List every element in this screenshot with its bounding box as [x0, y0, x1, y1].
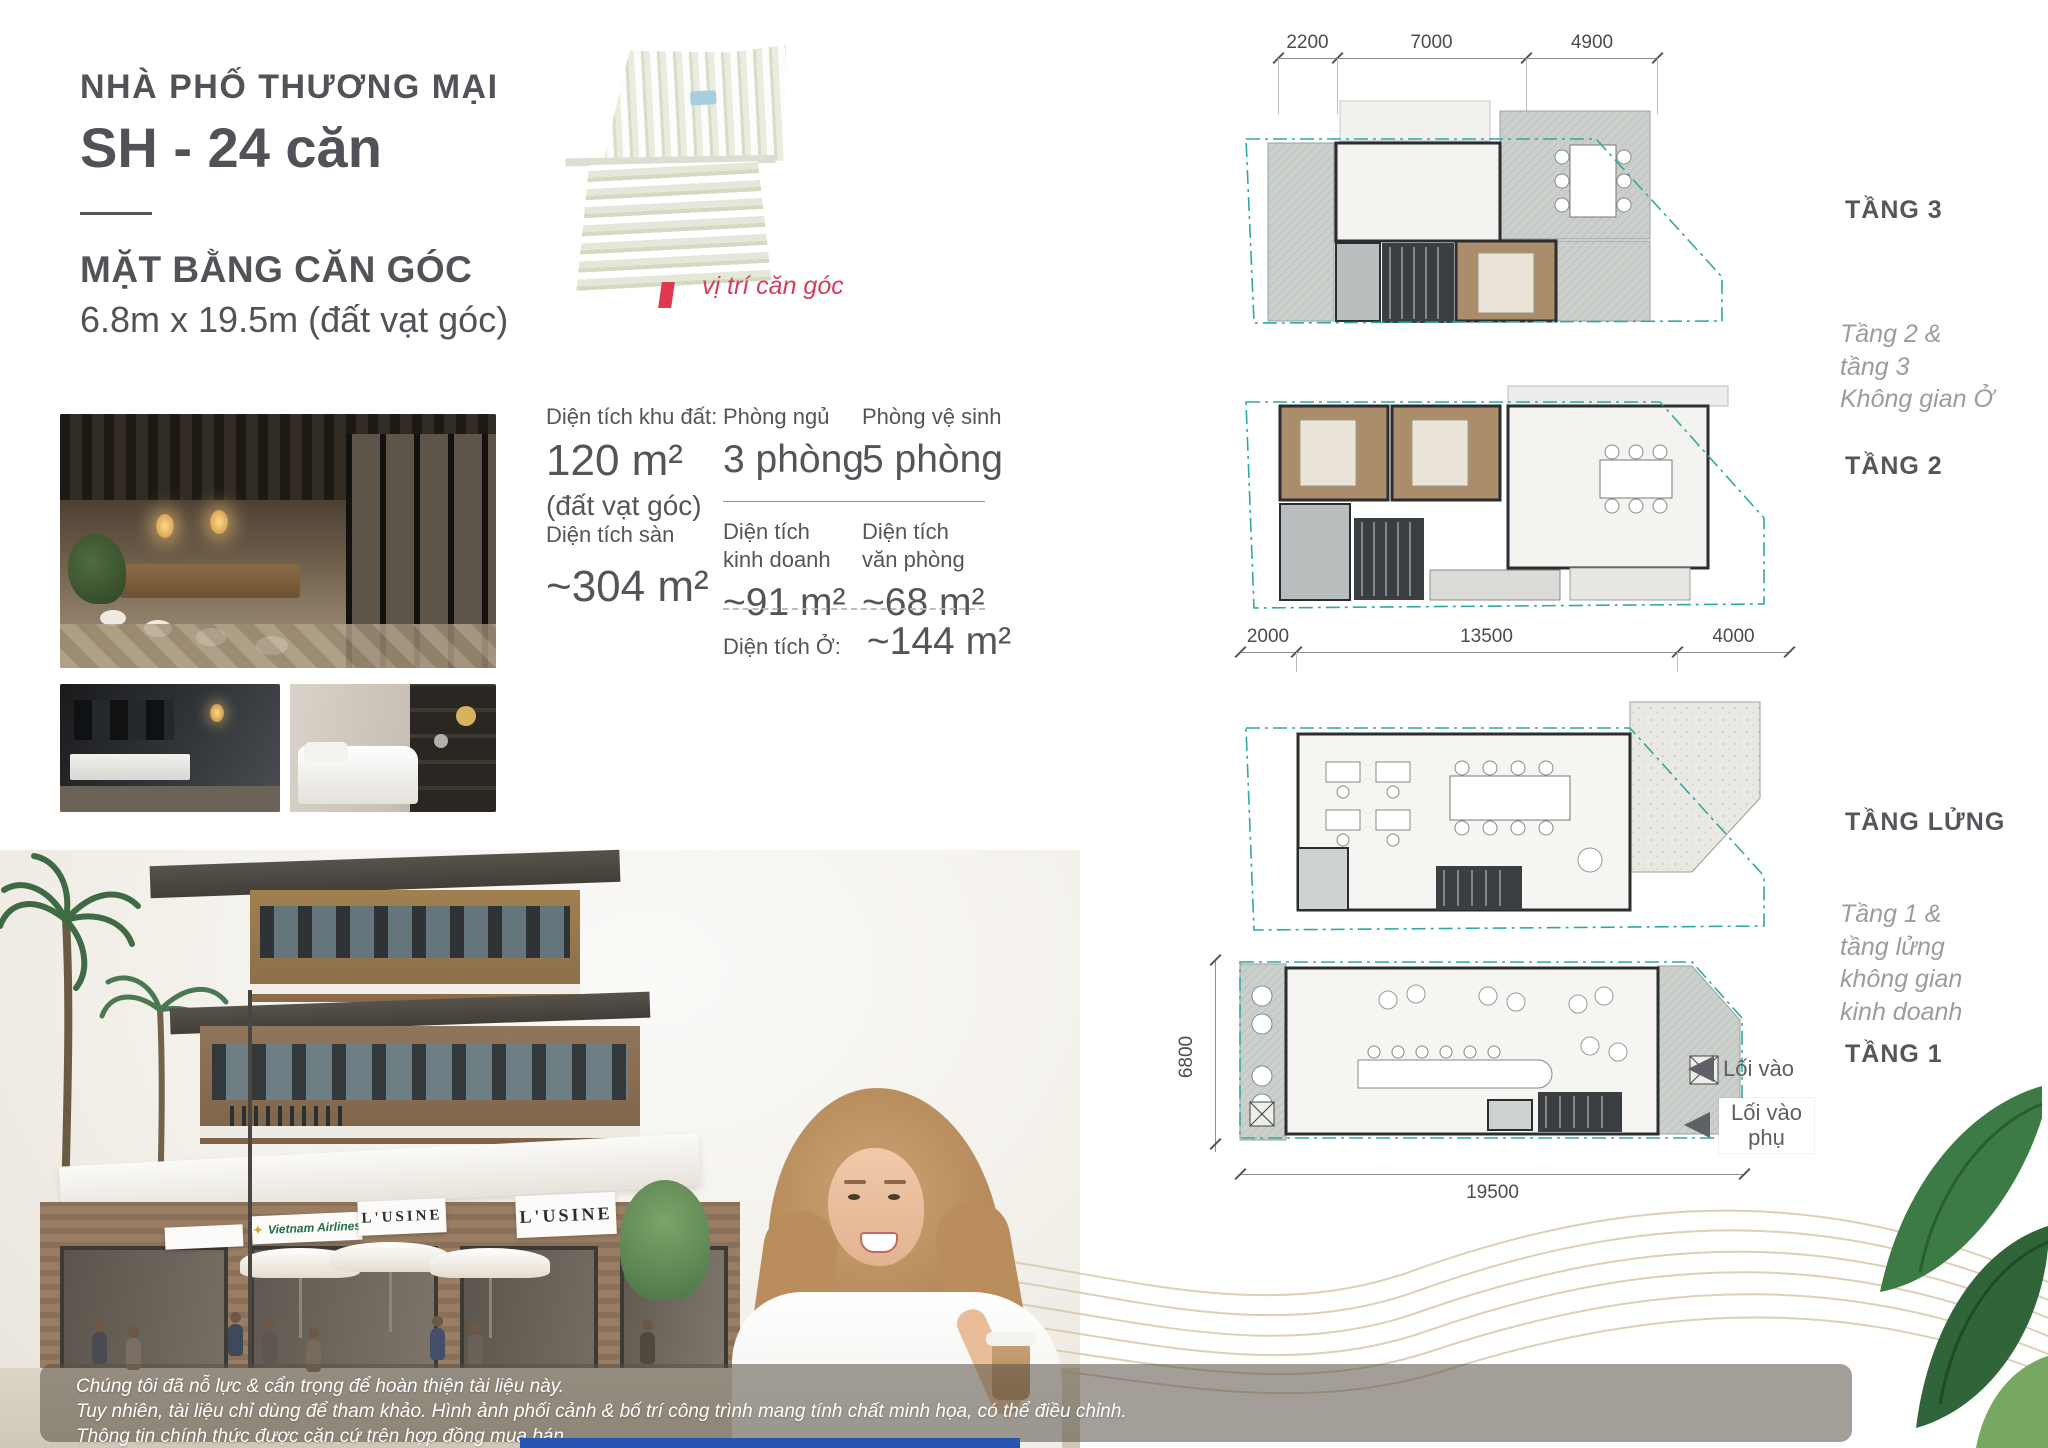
dim-7000: 7000: [1337, 32, 1526, 54]
storefront-sign-blank: [165, 1224, 244, 1249]
business-area-label: Diện tích kinh doanh: [723, 518, 845, 573]
interior-photo-large: [60, 414, 496, 668]
site-map-pool: [690, 90, 717, 105]
business-area-value: ~91 m²: [723, 581, 845, 625]
site-map-upper-cluster: [586, 43, 792, 171]
bathroom-label: Phòng vệ sinh: [862, 404, 1003, 430]
decor-circle: [456, 706, 476, 726]
office-area-label: Diện tích văn phòng: [862, 518, 984, 573]
pedestrian: [430, 1316, 445, 1360]
dim-4900: 4900: [1526, 32, 1658, 54]
floor-plan-t2: [1240, 368, 1800, 631]
building-second-floor: [200, 1026, 640, 1144]
dim-4000: 4000: [1677, 626, 1790, 648]
corner-unit-marker: [658, 282, 675, 308]
specs-divider: [723, 501, 985, 502]
main-entry-label: Lối vào: [1723, 1056, 1794, 1082]
pendant-light: [210, 510, 228, 534]
pendant-light: [156, 514, 174, 538]
dim-13500: 13500: [1296, 626, 1677, 648]
secondary-entry-label: Lối vào phụ: [1719, 1098, 1814, 1153]
title-divider: [80, 212, 152, 215]
counter: [70, 754, 190, 780]
secondary-entry-callout: Lối vào phụ: [1684, 1098, 1814, 1153]
main-entry-callout: Lối vào: [1688, 1056, 1794, 1082]
land-area-note: (đất vạt góc): [546, 490, 717, 522]
dimension-height-6800: 6800: [1186, 960, 1222, 1152]
coffee-cup-lid: [986, 1332, 1036, 1346]
dimension-chain-mid: 2000 13500 4000: [1240, 626, 1790, 672]
floor-area-value: ~304 m²: [546, 562, 709, 612]
face: [828, 1148, 924, 1266]
corner-unit-label: vị trí căn góc: [702, 272, 844, 301]
pendant-light: [210, 704, 224, 722]
bottom-blue-bar: [520, 1438, 1020, 1448]
floor-plan-t3: [1240, 95, 1800, 345]
living-area-value: ~144 m²: [867, 620, 1011, 664]
bedroom-label: Phòng ngủ: [723, 404, 864, 430]
storefront-sign-lusine-1: L'USINE: [357, 1198, 446, 1236]
bedroom-value: 3 phòng: [723, 438, 864, 482]
lotus-star-icon: ✦: [253, 1223, 264, 1237]
building-top-floor: [250, 890, 580, 1002]
intro-block: NHÀ PHỐ THƯƠNG MẠI SH - 24 căn MẶT BẰNG …: [80, 68, 508, 341]
brochure-page: NHÀ PHỐ THƯƠNG MẠI SH - 24 căn MẶT BẰNG …: [0, 0, 2048, 1448]
site-map-thumbnail: [560, 38, 809, 302]
disclaimer-line-1: Chúng tôi đã nỗ lực & cẩn trọng để hoàn …: [76, 1374, 1852, 1399]
lamp-post: [248, 990, 252, 1410]
storefront-sign-lusine-2: L'USINE: [515, 1192, 617, 1238]
plan-heading: MẶT BẰNG CĂN GÓC: [80, 249, 508, 291]
disclaimer-line-2: Tuy nhiên, tài liệu chỉ dùng để tham khả…: [76, 1399, 1852, 1424]
disclaimer-box: Chúng tôi đã nỗ lực & cẩn trọng để hoàn …: [40, 1364, 1852, 1442]
storefront-sign-vietnam-airlines: ✦ Vietnam Airlines: [251, 1212, 362, 1245]
interior-photo-kitchen: [60, 684, 280, 812]
plan-size: 6.8m x 19.5m (đất vạt góc): [80, 299, 508, 341]
leaf-decoration: [1836, 1056, 2048, 1448]
floor-plan-mezzanine: [1240, 680, 1800, 947]
bathroom-value: 5 phòng: [862, 438, 1003, 482]
floor-label-t2: TẦNG 2: [1845, 452, 1943, 481]
pedestrian: [640, 1320, 655, 1364]
living-area-label: Diện tích Ở:: [723, 634, 841, 660]
pedestrian: [262, 1320, 277, 1364]
caption-upper-floors: Tầng 2 & tầng 3 Không gian Ở: [1840, 318, 1994, 416]
wood-table: [120, 564, 300, 598]
land-area-label: Diện tích khu đất:: [546, 404, 717, 430]
floor-label-t3: TẦNG 3: [1845, 196, 1943, 225]
pillow: [304, 742, 348, 762]
pedestrian: [468, 1322, 483, 1366]
decor-circle: [434, 734, 448, 748]
shelf-wall: [410, 684, 496, 812]
cafe-umbrella: [430, 1248, 550, 1338]
floor-area-label: Diện tích sàn: [546, 522, 709, 548]
page-title: SH - 24 căn: [80, 115, 508, 180]
category-heading: NHÀ PHỐ THƯƠNG MẠI: [80, 68, 508, 107]
floor-label-mezzanine: TẦNG LỬNG: [1845, 808, 2005, 837]
dim-2200: 2200: [1278, 32, 1337, 54]
pedestrian: [228, 1312, 243, 1356]
office-area-value: ~68 m²: [862, 581, 984, 625]
smile: [860, 1232, 898, 1253]
dimension-chain-top: 2200 7000 4900: [1278, 30, 1658, 100]
patterned-floor: [60, 624, 496, 668]
arrow-left-icon: [1684, 1112, 1710, 1138]
arrow-left-icon: [1688, 1056, 1714, 1082]
interior-photo-bedroom: [290, 684, 496, 812]
land-area-value: 120 m²: [546, 436, 717, 486]
floor-plan-t1: [1238, 960, 1748, 1165]
cabinets: [74, 700, 174, 740]
specs-dashed-divider: [723, 608, 985, 610]
caption-lower-floors: Tầng 1 & tầng lửng không gian kinh doanh: [1840, 898, 1962, 1028]
pedestrian: [92, 1320, 107, 1364]
